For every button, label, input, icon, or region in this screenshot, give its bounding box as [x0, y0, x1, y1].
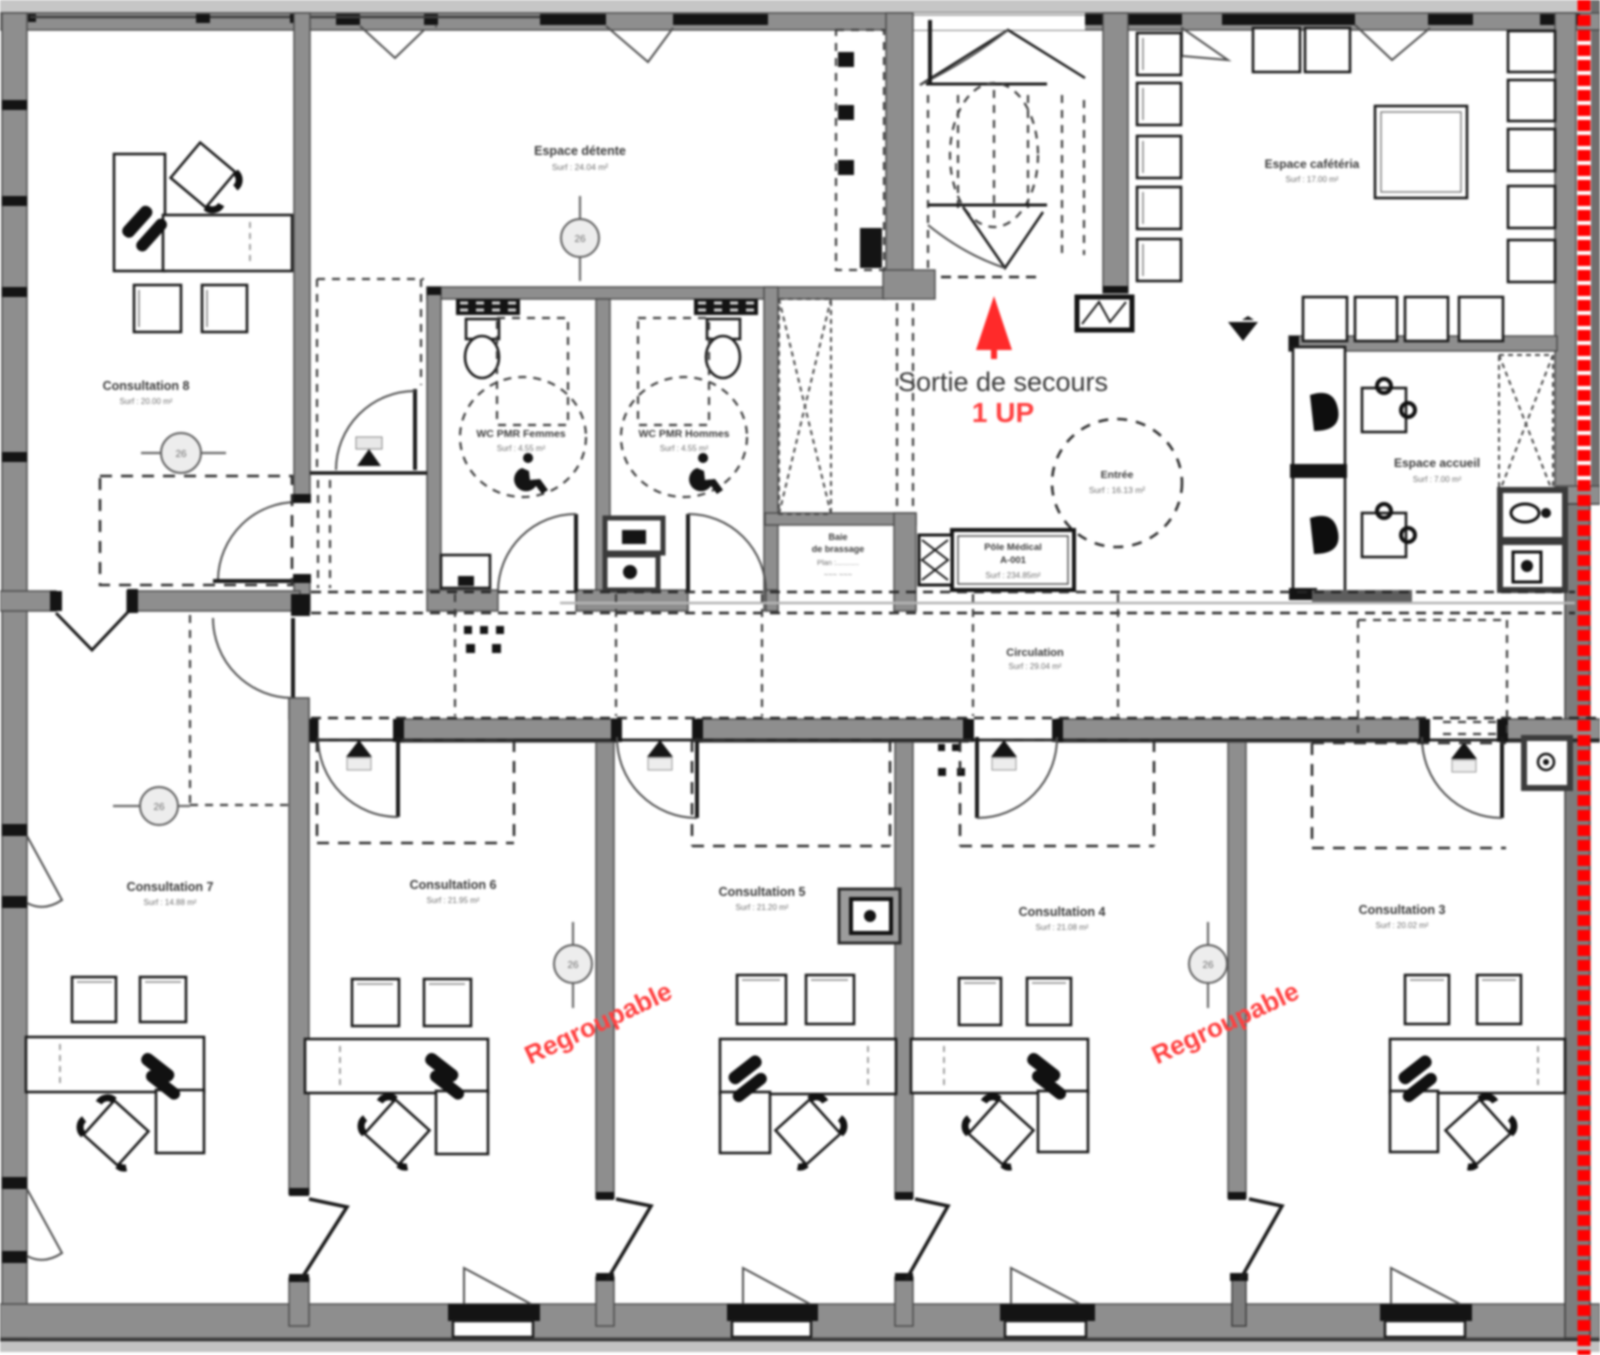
svg-text:Surf : 21.95 m²: Surf : 21.95 m² [427, 896, 480, 905]
svg-text:Surf : 7.00 m²: Surf : 7.00 m² [1413, 475, 1462, 484]
svg-text:Plan :...........: Plan :........... [817, 558, 859, 567]
svg-text:WC PMR Femmes: WC PMR Femmes [476, 428, 565, 440]
svg-text:26: 26 [574, 234, 586, 245]
svg-text:Consultation 8: Consultation 8 [103, 379, 190, 393]
svg-text:de brassage: de brassage [812, 544, 865, 554]
svg-text:Surf : 21.08 m²: Surf : 21.08 m² [1036, 923, 1089, 932]
svg-text:Sortie de secours: Sortie de secours [898, 367, 1108, 397]
svg-text:Surf : 234.85m²: Surf : 234.85m² [985, 571, 1040, 580]
svg-text:Consultation 7: Consultation 7 [127, 880, 214, 894]
svg-text:Consultation 3: Consultation 3 [1359, 903, 1446, 917]
svg-text:Pôle Médical: Pôle Médical [984, 542, 1042, 553]
svg-text:Consultation 5: Consultation 5 [719, 885, 806, 899]
svg-text:Surf : 4.55 m²: Surf : 4.55 m² [497, 444, 546, 453]
svg-text:26: 26 [153, 802, 165, 813]
svg-text:Surf : 21.20 m²: Surf : 21.20 m² [736, 903, 789, 912]
svg-text:Surf : 20.02 m²: Surf : 20.02 m² [1376, 921, 1429, 930]
svg-text:Circulation: Circulation [1006, 647, 1064, 659]
svg-text:26: 26 [175, 449, 187, 460]
svg-text:~~~ ~~~: ~~~ ~~~ [824, 570, 853, 579]
svg-text:Surf : 20.00 m²: Surf : 20.00 m² [120, 397, 173, 406]
svg-text:Surf : 29.04 m²: Surf : 29.04 m² [1009, 662, 1062, 671]
svg-text:Surf : 14.88 m²: Surf : 14.88 m² [144, 898, 197, 907]
svg-text:Consultation 6: Consultation 6 [410, 878, 497, 892]
svg-text:26: 26 [567, 960, 579, 971]
svg-text:26: 26 [1202, 960, 1214, 971]
svg-text:Surf : 24.04 m²: Surf : 24.04 m² [552, 162, 608, 172]
svg-text:Surf : 17.00 m²: Surf : 17.00 m² [1286, 175, 1339, 184]
svg-text:Baie: Baie [828, 532, 847, 542]
svg-text:1 UP: 1 UP [972, 397, 1034, 428]
svg-text:Surf : 16.13 m²: Surf : 16.13 m² [1089, 485, 1145, 495]
svg-text:Consultation 4: Consultation 4 [1019, 905, 1106, 919]
svg-text:Espace cafétéria: Espace cafétéria [1265, 157, 1360, 171]
svg-text:WC PMR Hommes: WC PMR Hommes [638, 428, 729, 440]
svg-text:A-001: A-001 [1000, 555, 1027, 566]
svg-text:Surf : 4.55 m²: Surf : 4.55 m² [660, 444, 709, 453]
svg-text:Espace accueil: Espace accueil [1394, 456, 1480, 470]
svg-text:Espace détente: Espace détente [534, 144, 626, 158]
svg-text:Entrée: Entrée [1101, 469, 1134, 481]
